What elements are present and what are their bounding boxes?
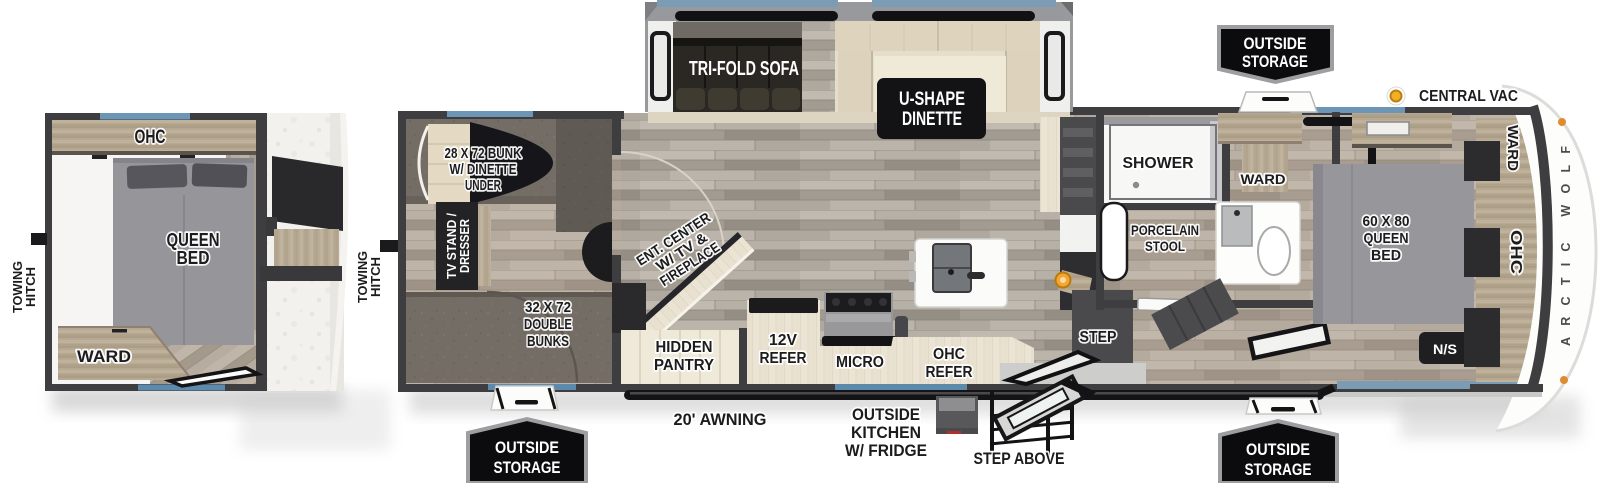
svg-text:TV STAND /: TV STAND / bbox=[445, 213, 459, 279]
svg-text:STORAGE: STORAGE bbox=[494, 459, 561, 477]
svg-text:STOOL: STOOL bbox=[1145, 238, 1185, 254]
svg-text:BED: BED bbox=[1371, 247, 1401, 264]
svg-text:OHC: OHC bbox=[933, 346, 965, 363]
svg-text:BUNKS: BUNKS bbox=[527, 333, 569, 350]
svg-text:STORAGE: STORAGE bbox=[1242, 53, 1308, 71]
svg-text:N/S: N/S bbox=[1433, 341, 1457, 357]
svg-text:REFER: REFER bbox=[760, 350, 807, 367]
svg-text:QUEEN: QUEEN bbox=[1364, 230, 1409, 247]
svg-text:WARD: WARD bbox=[1241, 171, 1286, 187]
svg-text:DINETTE: DINETTE bbox=[902, 109, 962, 130]
svg-text:WARD: WARD bbox=[1504, 125, 1521, 171]
svg-text:OHC: OHC bbox=[1507, 230, 1524, 274]
svg-text:OUTSIDE: OUTSIDE bbox=[1246, 441, 1310, 459]
svg-text:OUTSIDE: OUTSIDE bbox=[1244, 35, 1307, 53]
svg-text:60 X 80: 60 X 80 bbox=[1363, 213, 1410, 230]
svg-text:REFER: REFER bbox=[926, 364, 973, 381]
svg-text:W/ DINETTE: W/ DINETTE bbox=[450, 162, 517, 178]
svg-text:STEP: STEP bbox=[1080, 329, 1117, 346]
svg-text:STEP ABOVE: STEP ABOVE bbox=[974, 450, 1065, 468]
svg-text:BED: BED bbox=[177, 248, 210, 268]
svg-text:WARD: WARD bbox=[77, 347, 131, 366]
svg-text:20' AWNING: 20' AWNING bbox=[674, 411, 767, 429]
svg-text:DRESSER: DRESSER bbox=[458, 219, 472, 273]
svg-text:W/ FRIDGE: W/ FRIDGE bbox=[845, 442, 927, 460]
svg-text:HITCH: HITCH bbox=[368, 257, 383, 297]
svg-text:OUTSIDE: OUTSIDE bbox=[852, 406, 920, 424]
svg-text:CENTRAL VAC: CENTRAL VAC bbox=[1419, 88, 1518, 105]
svg-text:PANTRY: PANTRY bbox=[654, 357, 714, 374]
svg-text:28 X 72 BUNK: 28 X 72 BUNK bbox=[445, 146, 522, 162]
svg-text:UNDER: UNDER bbox=[465, 178, 501, 194]
svg-text:DOUBLE: DOUBLE bbox=[524, 316, 572, 333]
svg-text:U-SHAPE: U-SHAPE bbox=[899, 89, 965, 110]
svg-text:TRI-FOLD SOFA: TRI-FOLD SOFA bbox=[689, 58, 799, 80]
svg-text:MICRO: MICRO bbox=[836, 354, 884, 371]
svg-text:PORCELAIN: PORCELAIN bbox=[1131, 222, 1199, 238]
svg-text:HIDDEN: HIDDEN bbox=[656, 339, 713, 356]
svg-text:SHOWER: SHOWER bbox=[1123, 155, 1194, 172]
svg-text:QUEEN: QUEEN bbox=[167, 230, 220, 250]
svg-text:HITCH: HITCH bbox=[23, 267, 38, 307]
svg-text:KITCHEN: KITCHEN bbox=[851, 424, 921, 442]
svg-text:STORAGE: STORAGE bbox=[1245, 461, 1312, 479]
svg-text:32 X 72: 32 X 72 bbox=[525, 299, 571, 316]
svg-text:OUTSIDE: OUTSIDE bbox=[495, 439, 559, 457]
svg-text:OHC: OHC bbox=[135, 127, 166, 148]
svg-text:12V: 12V bbox=[769, 332, 797, 349]
